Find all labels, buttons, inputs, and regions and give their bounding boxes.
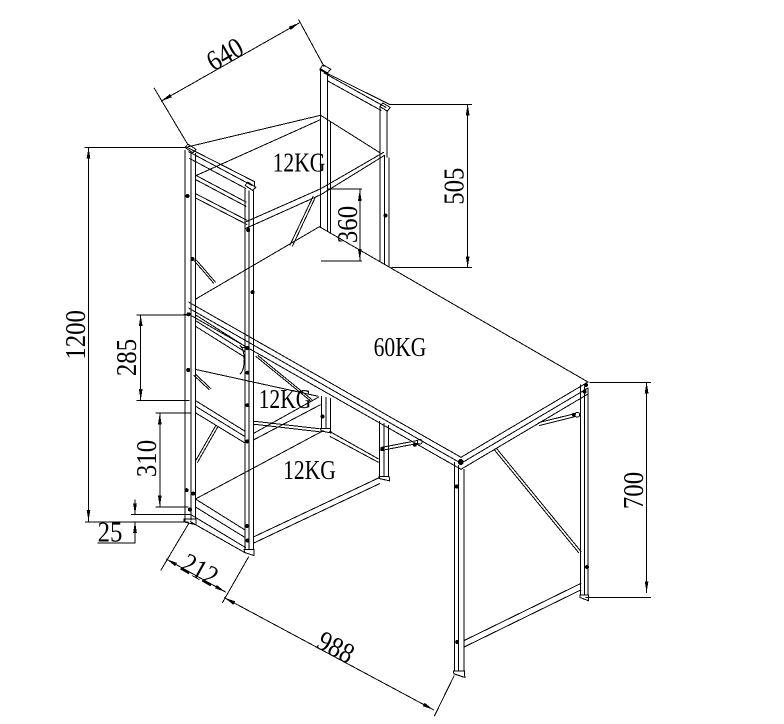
svg-text:12KG: 12KG <box>283 456 336 486</box>
svg-text:12KG: 12KG <box>273 148 326 178</box>
svg-text:360: 360 <box>331 206 363 243</box>
svg-text:60KG: 60KG <box>374 333 427 363</box>
svg-text:700: 700 <box>617 472 649 509</box>
svg-text:310: 310 <box>130 440 162 477</box>
svg-text:1200: 1200 <box>59 310 91 360</box>
svg-text:25: 25 <box>98 516 123 548</box>
svg-text:285: 285 <box>110 339 142 376</box>
svg-text:505: 505 <box>438 168 470 205</box>
svg-text:12KG: 12KG <box>259 385 312 415</box>
